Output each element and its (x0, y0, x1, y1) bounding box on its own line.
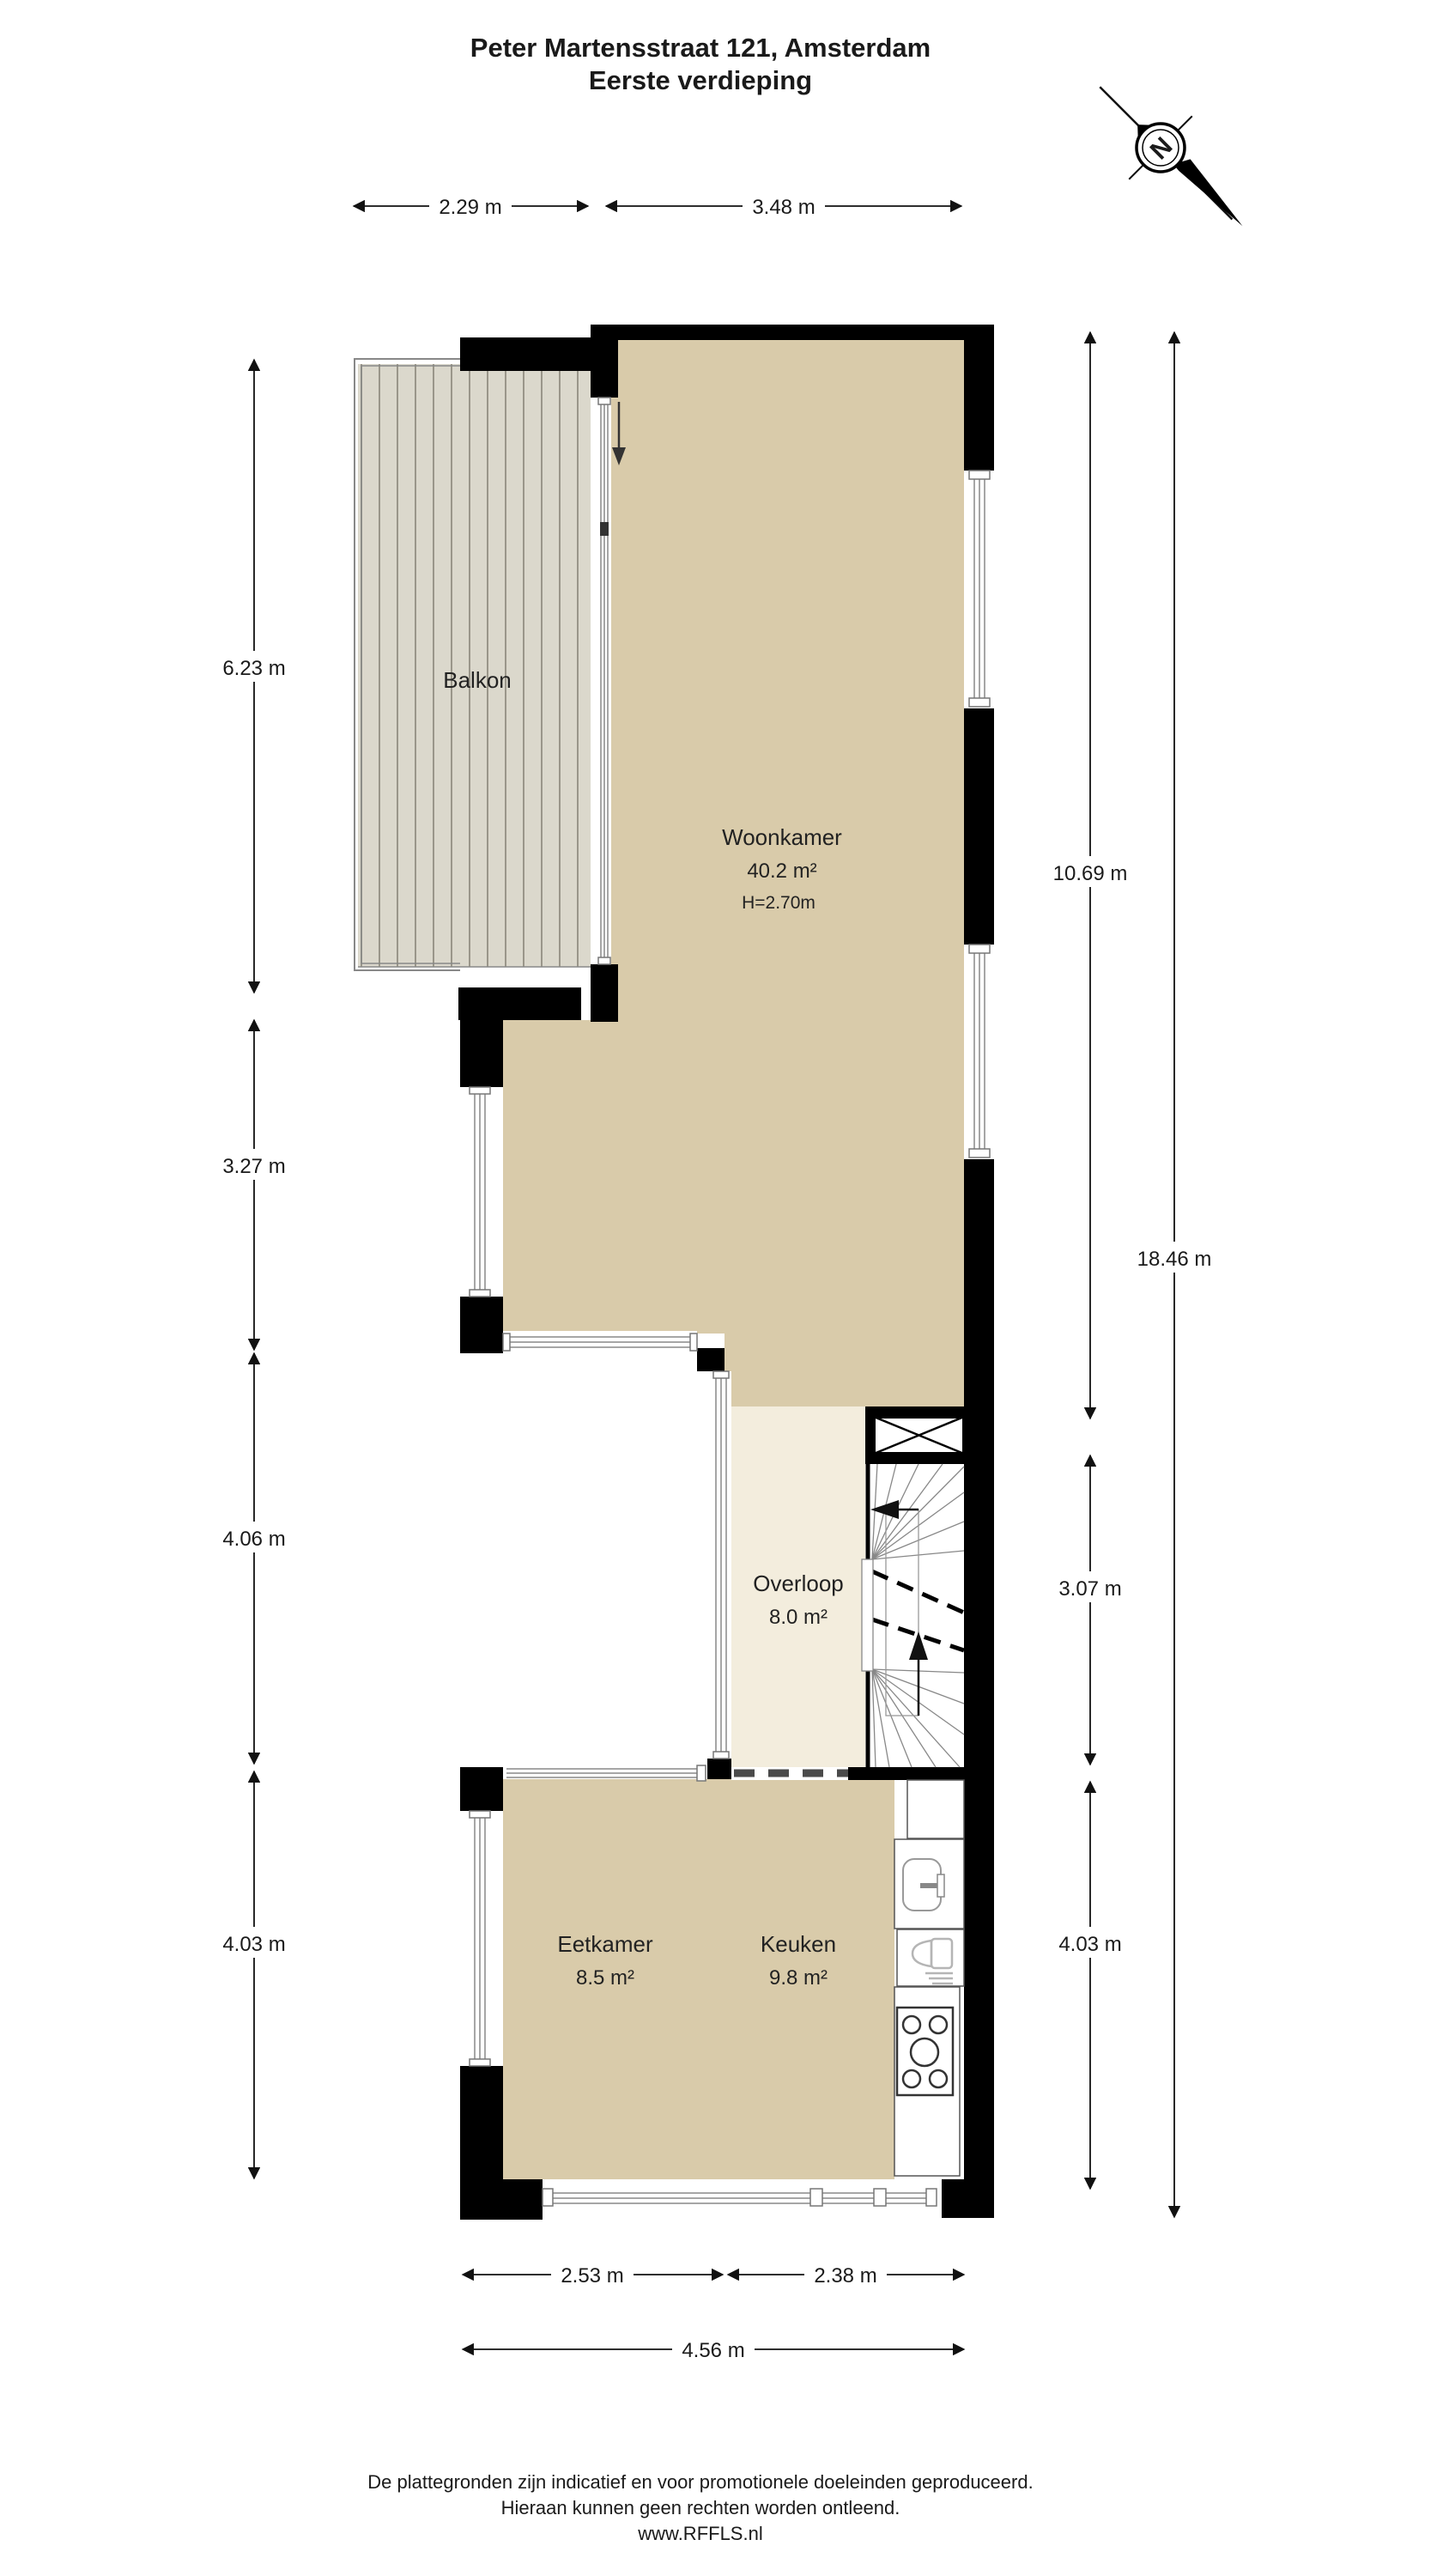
room-label-overloop: Overloop (753, 1571, 844, 1596)
dim-top-balcony: 2.29 m (354, 191, 588, 220)
svg-text:6.23 m: 6.23 m (222, 657, 285, 680)
room-area-keuken: 9.8 m² (769, 1966, 828, 1990)
floor-plan-canvas: Peter Martensstraat 121, Amsterdam Eerst… (0, 0, 1449, 2576)
svg-text:10.69 m: 10.69 m (1053, 862, 1128, 885)
dim-bottom-kitchen: 2.38 m (728, 2259, 964, 2288)
svg-text:4.06 m: 4.06 m (222, 1528, 285, 1551)
dim-right-landing: 3.07 m (1044, 1455, 1137, 1765)
shaft-box (874, 1417, 964, 1454)
room-area-woonkamer: 40.2 m² (747, 860, 816, 883)
dim-left-balcony: 6.23 m (208, 360, 300, 993)
dim-right-total: 18.46 m (1123, 332, 1226, 2217)
floorplan-page: Peter Martensstraat 121, Amsterdam Eerst… (0, 0, 1449, 2576)
dim-bottom-total: 4.56 m (463, 2334, 964, 2363)
title: Peter Martensstraat 121, Amsterdam Eerst… (470, 33, 931, 95)
room-label-woonkamer: Woonkamer (722, 824, 842, 850)
footer-disclaimer-2: Hieraan kunnen geen rechten worden ontle… (501, 2497, 900, 2518)
footer-website: www.RFFLS.nl (637, 2523, 762, 2544)
kitchen-fixtures (894, 1780, 964, 2176)
footer-disclaimer-1: De plattegronden zijn indicatief en voor… (367, 2471, 1033, 2493)
kitchen-counter (907, 1780, 964, 1838)
svg-text:3.07 m: 3.07 m (1058, 1577, 1121, 1601)
svg-text:3.48 m: 3.48 m (752, 196, 815, 219)
svg-text:4.03 m: 4.03 m (222, 1933, 285, 1956)
room-height-woonkamer: H=2.70m (742, 893, 815, 913)
dim-right-kitchen: 4.03 m (1044, 1782, 1137, 2189)
balcony-decking (358, 364, 591, 967)
stairs-handrail (862, 1559, 873, 1671)
room-area-eetkamer: 8.5 m² (576, 1966, 634, 1990)
dim-left-dining: 4.03 m (208, 1771, 300, 2178)
footer: De plattegronden zijn indicatief en voor… (367, 2471, 1033, 2544)
svg-text:2.38 m: 2.38 m (814, 2264, 876, 2287)
room-label-balkon: Balkon (443, 667, 512, 693)
page-subtitle: Eerste verdieping (589, 65, 812, 95)
dim-top-living: 3.48 m (606, 191, 961, 220)
balcony (355, 359, 591, 970)
room-label-keuken: Keuken (761, 1931, 836, 1957)
dim-left-landing: 4.06 m (208, 1353, 300, 1764)
svg-text:3.27 m: 3.27 m (222, 1155, 285, 1178)
svg-text:2.53 m: 2.53 m (561, 2264, 623, 2287)
dim-bottom-dining: 2.53 m (463, 2259, 723, 2288)
svg-text:4.56 m: 4.56 m (682, 2339, 744, 2362)
sliding-door-handle (600, 522, 609, 536)
room-label-eetkamer: Eetkamer (557, 1931, 653, 1957)
room-area-overloop: 8.0 m² (769, 1606, 828, 1629)
compass-icon: N (1069, 56, 1273, 260)
dim-left-living: 3.27 m (208, 1020, 300, 1350)
svg-text:4.03 m: 4.03 m (1058, 1933, 1121, 1956)
stove-icon (897, 2008, 953, 2095)
svg-text:18.46 m: 18.46 m (1137, 1248, 1212, 1271)
page-title: Peter Martensstraat 121, Amsterdam (470, 33, 931, 63)
svg-text:2.29 m: 2.29 m (439, 196, 501, 219)
open-passage-dashed (731, 1767, 848, 1780)
